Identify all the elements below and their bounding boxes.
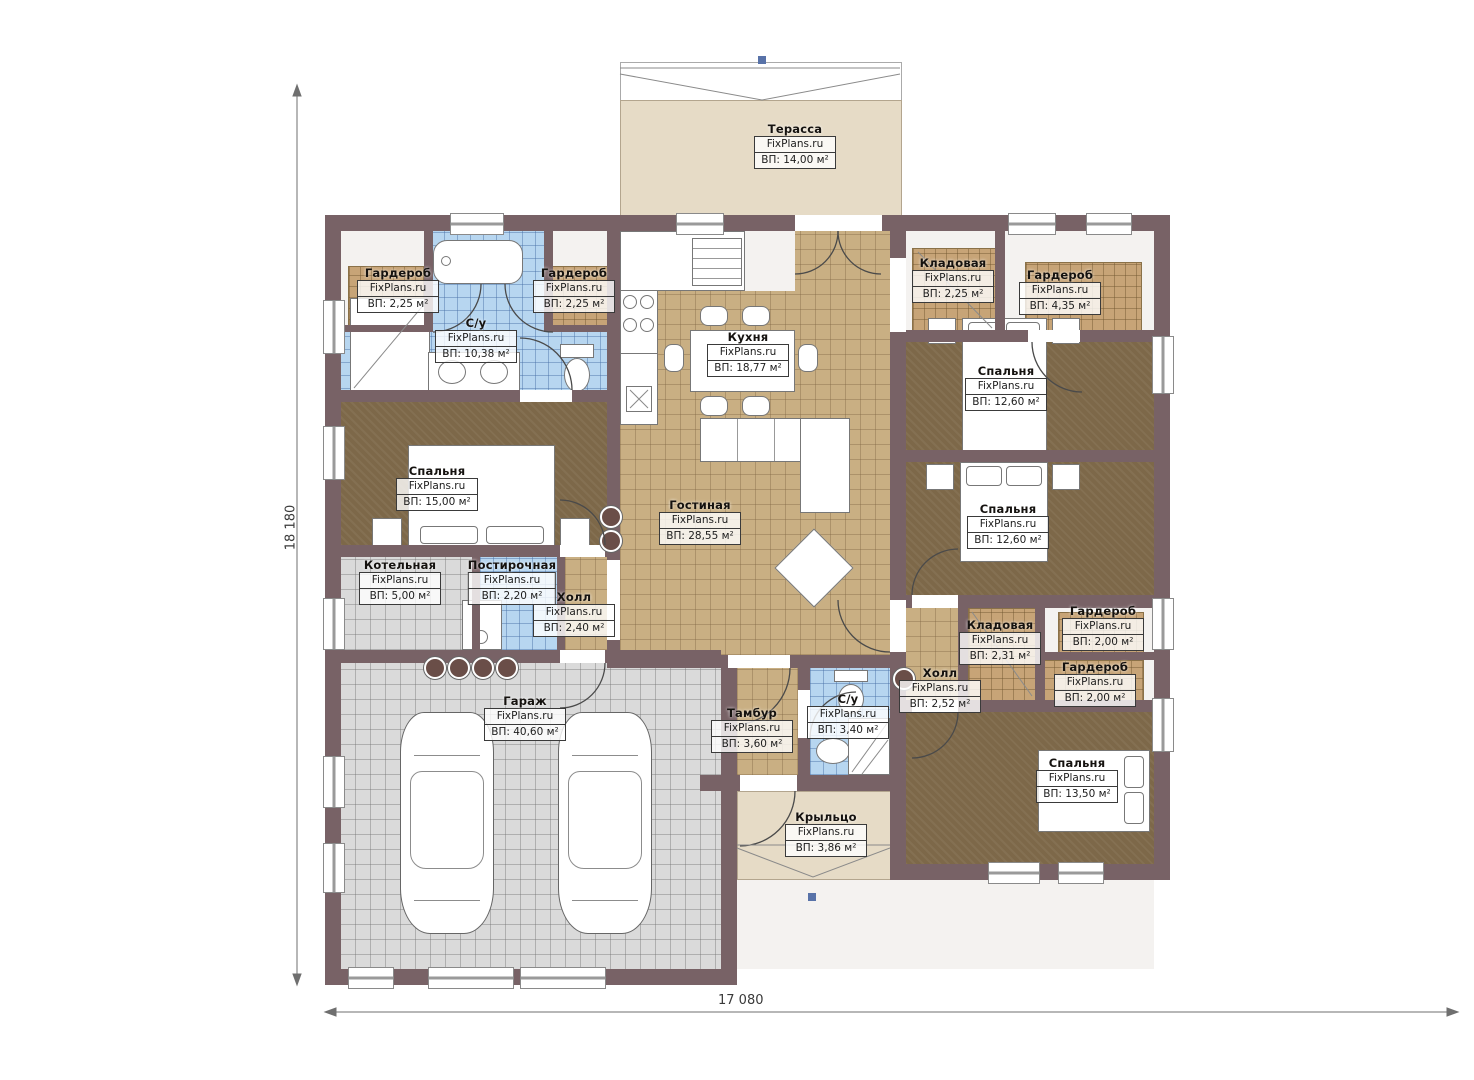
window [676, 213, 724, 235]
car-trunk-line [572, 900, 638, 901]
entry-zone [745, 231, 795, 291]
wall-segment [1042, 652, 1154, 660]
room-brand: FixPlans.ru [484, 708, 566, 725]
room-area: ВП: 3,60 м² [711, 736, 793, 753]
utility-knob [424, 657, 446, 679]
room-area: ВП: 3,40 м² [807, 722, 889, 739]
room-label-living: Гостиная FixPlans.ru ВП: 28,55 м² [659, 498, 741, 545]
room-brand: FixPlans.ru [959, 632, 1041, 649]
window [323, 756, 345, 808]
pillow [1006, 466, 1042, 486]
toilet-tank [834, 670, 868, 682]
door-opening [560, 650, 605, 663]
room-name: Холл [899, 666, 981, 680]
room-area: ВП: 2,25 м² [912, 286, 994, 303]
room-area: ВП: 10,38 м² [435, 346, 517, 363]
car-right [558, 712, 652, 934]
room-area: ВП: 18,77 м² [707, 360, 789, 377]
chair [664, 344, 684, 372]
window [323, 300, 345, 354]
nightstand [926, 464, 954, 490]
room-area: ВП: 40,60 м² [484, 724, 566, 741]
room-name: Котельная [359, 558, 441, 572]
room-name: Спальня [967, 502, 1049, 516]
room-name: Гардероб [1019, 268, 1101, 282]
door-opening [890, 258, 906, 332]
kitchen-sink [626, 386, 652, 412]
garage-door [520, 967, 606, 989]
window [348, 967, 394, 989]
utility-knob [496, 657, 518, 679]
radiator-valve [600, 506, 622, 528]
garage-door [428, 967, 514, 989]
room-label-kitchen: Кухня FixPlans.ru ВП: 18,77 м² [707, 330, 789, 377]
room-label-bedroom-tr: Спальня FixPlans.ru ВП: 12,60 м² [965, 364, 1047, 411]
nightstand [1052, 464, 1080, 490]
washbasin [816, 738, 850, 764]
radiator-valve [600, 530, 622, 552]
room-brand: FixPlans.ru [965, 378, 1047, 395]
room-brand: FixPlans.ru [1062, 618, 1144, 635]
room-brand: FixPlans.ru [785, 824, 867, 841]
room-name: Спальня [396, 464, 478, 478]
chair [798, 344, 818, 372]
door-opening [912, 595, 958, 608]
room-name: Кладовая [912, 256, 994, 270]
car-hood-line [572, 755, 638, 756]
car-roof [568, 771, 642, 869]
door-opening [560, 545, 605, 557]
nightstand [560, 518, 590, 548]
room-label-boiler: Котельная FixPlans.ru ВП: 5,00 м² [359, 558, 441, 605]
room-area: ВП: 14,00 м² [754, 152, 836, 169]
room-label-terrace: Терасса FixPlans.ru ВП: 14,00 м² [754, 122, 836, 169]
chair [742, 306, 770, 326]
room-label-bathroom-main: С/у FixPlans.ru ВП: 10,38 м² [435, 316, 517, 363]
room-name: Гардероб [1054, 660, 1136, 674]
room-name: Гардероб [533, 266, 615, 280]
wall-segment [544, 325, 607, 332]
room-brand: FixPlans.ru [396, 478, 478, 495]
room-area: ВП: 15,00 м² [396, 494, 478, 511]
window [1086, 213, 1132, 235]
room-area: ВП: 13,50 м² [1036, 786, 1118, 803]
room-label-hall-left: Холл FixPlans.ru ВП: 2,40 м² [533, 590, 615, 637]
room-name: Тамбур [711, 706, 793, 720]
room-area: ВП: 28,55 м² [659, 528, 741, 545]
survey-marker [808, 893, 816, 901]
burner [640, 318, 654, 332]
room-area: ВП: 4,35 м² [1019, 298, 1101, 315]
nightstand [372, 518, 402, 548]
window [1152, 698, 1174, 752]
room-area: ВП: 2,52 м² [899, 696, 981, 713]
pillow [966, 466, 1002, 486]
room-label-hall-right: Холл FixPlans.ru ВП: 2,52 м² [899, 666, 981, 713]
room-area: ВП: 5,00 м² [359, 588, 441, 605]
car-hood-line [414, 755, 480, 756]
room-label-bathroom-small: С/у FixPlans.ru ВП: 3,40 м² [807, 692, 889, 739]
room-name: Гостиная [659, 498, 741, 512]
wall-segment [905, 450, 1154, 462]
burner [640, 295, 654, 309]
room-area: ВП: 12,60 м² [965, 394, 1047, 411]
wall-segment [1154, 215, 1170, 880]
fridge-icon [692, 238, 742, 286]
bathtub-drain [441, 256, 451, 266]
window [323, 843, 345, 893]
door-opening [1028, 330, 1080, 342]
room-brand: FixPlans.ru [967, 516, 1049, 533]
chair [700, 396, 728, 416]
room-name: Крыльцо [785, 810, 867, 824]
door-opening [520, 390, 572, 402]
room-brand: FixPlans.ru [1036, 770, 1118, 787]
car-roof [410, 771, 484, 869]
room-area: ВП: 12,60 м² [967, 532, 1049, 549]
wall-segment [995, 231, 1005, 330]
room-name: Кладовая [959, 618, 1041, 632]
survey-marker [758, 56, 766, 64]
room-name: Спальня [965, 364, 1047, 378]
room-area: ВП: 2,00 м² [1054, 690, 1136, 707]
room-brand: FixPlans.ru [357, 280, 439, 297]
terrace-roof-edge [620, 62, 902, 102]
room-label-wardrobe-r1: Гардероб FixPlans.ru ВП: 2,00 м² [1062, 604, 1144, 651]
room-label-porch: Крыльцо FixPlans.ru ВП: 3,86 м² [785, 810, 867, 857]
room-brand: FixPlans.ru [754, 136, 836, 153]
room-brand: FixPlans.ru [1019, 282, 1101, 299]
room-brand: FixPlans.ru [899, 680, 981, 697]
room-name: Гардероб [1062, 604, 1144, 618]
burner [623, 295, 637, 309]
room-label-wardrobe-tr: Гардероб FixPlans.ru ВП: 4,35 м² [1019, 268, 1101, 315]
room-name: Постирочная [468, 558, 556, 572]
room-name: С/у [435, 316, 517, 330]
room-area: ВП: 3,86 м² [785, 840, 867, 857]
car-trunk-line [414, 900, 480, 901]
door-opening [795, 215, 882, 231]
pillow [1124, 756, 1144, 788]
toilet-tank [560, 344, 594, 358]
window [1152, 598, 1174, 650]
room-brand: FixPlans.ru [533, 604, 615, 621]
burner [623, 318, 637, 332]
sink-left [438, 360, 466, 384]
pillow [1124, 792, 1144, 824]
window [1058, 862, 1104, 884]
room-brand: FixPlans.ru [1054, 674, 1136, 691]
room-name: Кухня [707, 330, 789, 344]
wall-segment [721, 655, 737, 985]
room-label-bedroom-mr: Спальня FixPlans.ru ВП: 12,60 м² [967, 502, 1049, 549]
chair [742, 396, 770, 416]
dimension-width-label: 17 080 [718, 993, 764, 1008]
window [1152, 336, 1174, 394]
room-label-bedroom-left: Спальня FixPlans.ru ВП: 15,00 м² [396, 464, 478, 511]
room-brand: FixPlans.ru [435, 330, 517, 347]
room-brand: FixPlans.ru [468, 572, 556, 589]
sink-right [480, 360, 508, 384]
room-brand: FixPlans.ru [807, 706, 889, 723]
room-name: С/у [807, 692, 889, 706]
room-label-tambour: Тамбур FixPlans.ru ВП: 3,60 м² [711, 706, 793, 753]
room-label-wardrobe-tl2: Гардероб FixPlans.ru ВП: 2,25 м² [533, 266, 615, 313]
sofa-chaise [800, 418, 850, 513]
chair [700, 306, 728, 326]
room-name: Холл [533, 590, 615, 604]
wall-segment [340, 325, 433, 332]
pillow [486, 526, 544, 544]
room-brand: FixPlans.ru [533, 280, 615, 297]
room-brand: FixPlans.ru [359, 572, 441, 589]
car-left [400, 712, 494, 934]
room-name: Спальня [1036, 756, 1118, 770]
room-area: ВП: 2,00 м² [1062, 634, 1144, 651]
utility-knob [448, 657, 470, 679]
room-brand: FixPlans.ru [659, 512, 741, 529]
window [988, 862, 1040, 884]
window [1008, 213, 1056, 235]
room-name: Терасса [754, 122, 836, 136]
room-area: ВП: 2,25 м² [357, 296, 439, 313]
room-label-wardrobe-tl: Гардероб FixPlans.ru ВП: 2,25 м² [357, 266, 439, 313]
toilet-bowl [564, 358, 590, 392]
room-area: ВП: 2,25 м² [533, 296, 615, 313]
door-opening [890, 600, 906, 652]
room-label-garage: Гараж FixPlans.ru ВП: 40,60 м² [484, 694, 566, 741]
room-name: Гардероб [357, 266, 439, 280]
pillow [420, 526, 478, 544]
window [323, 426, 345, 480]
room-brand: FixPlans.ru [707, 344, 789, 361]
room-label-pantry-tr: Кладовая FixPlans.ru ВП: 2,25 м² [912, 256, 994, 303]
room-brand: FixPlans.ru [912, 270, 994, 287]
door-opening [728, 655, 790, 668]
utility-knob [472, 657, 494, 679]
room-brand: FixPlans.ru [711, 720, 793, 737]
room-label-bedroom-br: Спальня FixPlans.ru ВП: 13,50 м² [1036, 756, 1118, 803]
room-label-wardrobe-r2: Гардероб FixPlans.ru ВП: 2,00 м² [1054, 660, 1136, 707]
floor-plan-canvas: 18 180 17 080 Терасса FixPlans.ru ВП: 14… [0, 0, 1474, 1080]
door-opening [740, 775, 797, 791]
room-name: Гараж [484, 694, 566, 708]
room-label-pantry-right: Кладовая FixPlans.ru ВП: 2,31 м² [959, 618, 1041, 665]
wall-segment [700, 775, 905, 791]
dimension-height-label: 18 180 [283, 505, 298, 551]
window [323, 598, 345, 650]
room-area: ВП: 2,40 м² [533, 620, 615, 637]
window [450, 213, 504, 235]
room-area: ВП: 2,31 м² [959, 648, 1041, 665]
